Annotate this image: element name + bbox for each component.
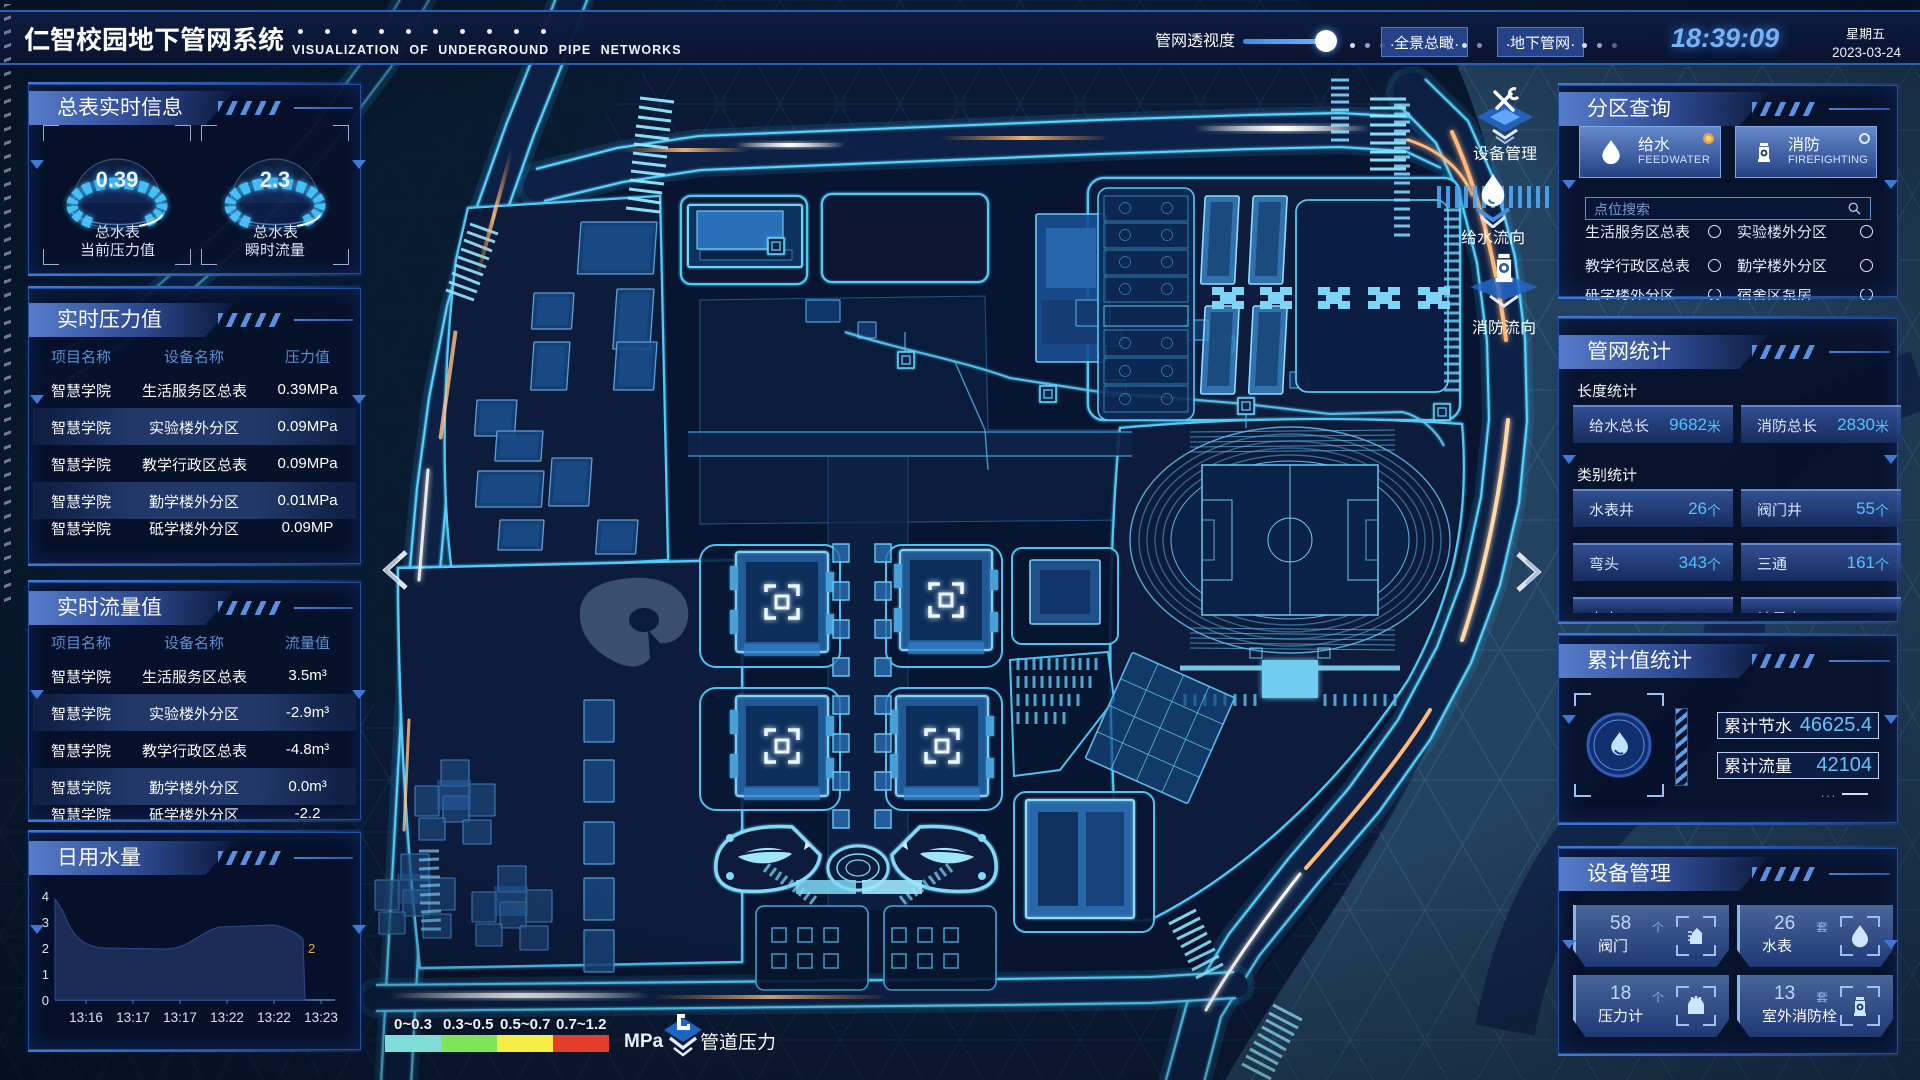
svg-text:13:16: 13:16 xyxy=(69,1010,103,1025)
svg-text:1: 1 xyxy=(42,967,49,982)
svg-text:13:23: 13:23 xyxy=(304,1010,338,1025)
svg-text:13:22: 13:22 xyxy=(257,1010,291,1025)
svg-text:13:17: 13:17 xyxy=(116,1010,150,1025)
svg-text:13:17: 13:17 xyxy=(163,1010,197,1025)
svg-text:0: 0 xyxy=(42,993,49,1008)
svg-text:4: 4 xyxy=(42,889,49,904)
svg-text:2: 2 xyxy=(308,941,315,956)
svg-text:2: 2 xyxy=(42,941,49,956)
svg-text:13:22: 13:22 xyxy=(210,1010,244,1025)
